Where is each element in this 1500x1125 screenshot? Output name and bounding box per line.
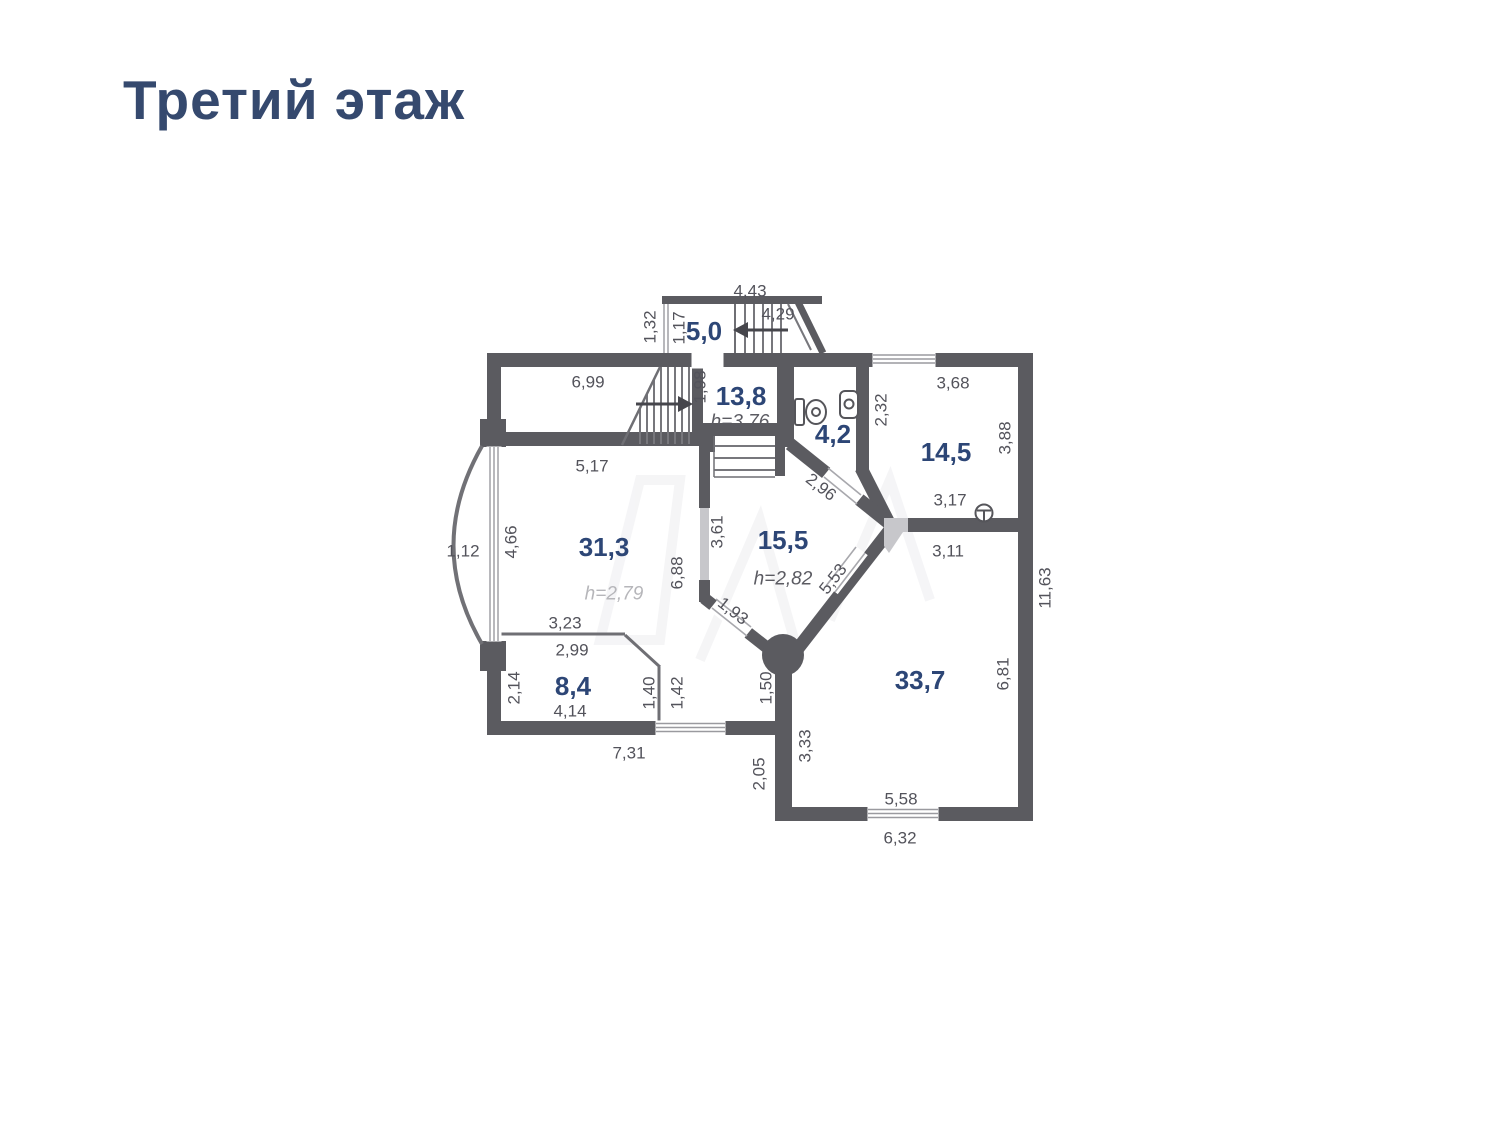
dimension-label: 3,68 <box>936 374 969 393</box>
dimension-label: 3,33 <box>796 729 815 762</box>
room-area-label: 13,8 <box>716 381 767 411</box>
dimension-label: 4,29 <box>761 305 794 324</box>
ceiling-height-label: h=3,76 <box>711 412 770 433</box>
dimension-label: 3,23 <box>548 614 581 633</box>
ceiling-height-label: h=2,82 <box>754 569 813 590</box>
dimension-label: 3,17 <box>933 491 966 510</box>
dimension-label: 2,14 <box>505 671 524 704</box>
dimension-label: 4,14 <box>553 702 586 721</box>
dimension-label: 4,66 <box>502 525 521 558</box>
ceiling-height-label: h=2,79 <box>585 584 644 605</box>
room-area-label: 33,7 <box>895 665 946 695</box>
dimension-label: 3,11 <box>932 542 964 561</box>
dimension-label: 5,58 <box>884 790 917 809</box>
lower-stair-flight <box>714 436 775 477</box>
dimension-label: 1,40 <box>640 676 659 709</box>
room-area-label: 4,2 <box>815 419 851 449</box>
floor-plan-page: Третий этаж <box>0 0 1500 1125</box>
room-area-label: 15,5 <box>758 525 809 555</box>
sink-icon <box>840 391 858 418</box>
room-area-label: 8,4 <box>555 671 592 701</box>
room-area-label: 14,5 <box>921 437 972 467</box>
room-area-label: 5,0 <box>686 316 722 346</box>
dimension-label: 3,61 <box>708 515 727 548</box>
dimension-label: 6,88 <box>668 556 687 589</box>
dimension-label: 1,42 <box>668 676 687 709</box>
dimension-label: 1,12 <box>446 542 479 561</box>
dimension-label: 3,88 <box>996 421 1015 454</box>
dimension-label: 6,99 <box>571 373 604 392</box>
dimension-label: 2,05 <box>750 757 769 790</box>
dimension-label: 2,32 <box>872 393 891 426</box>
room-area-label: 31,3 <box>579 532 630 562</box>
dimension-label: 4,43 <box>733 282 766 301</box>
dimension-label: 6,81 <box>994 657 1013 690</box>
dimension-label: 11,63 <box>1036 567 1055 608</box>
dimension-label: 1,32 <box>641 310 660 343</box>
dimension-label: 5,17 <box>575 457 608 476</box>
dimension-label: 2,99 <box>555 641 588 660</box>
towel-dryer-icon <box>976 505 993 522</box>
floor-plan-drawing: 4,434,291,321,176,991,983,682,323,885,17… <box>0 0 1500 1125</box>
dimension-label: 7,31 <box>612 744 645 763</box>
dimension-label: 1,50 <box>757 671 776 704</box>
dimension-label: 6,32 <box>883 829 916 848</box>
dimension-label: 1,98 <box>691 370 710 403</box>
